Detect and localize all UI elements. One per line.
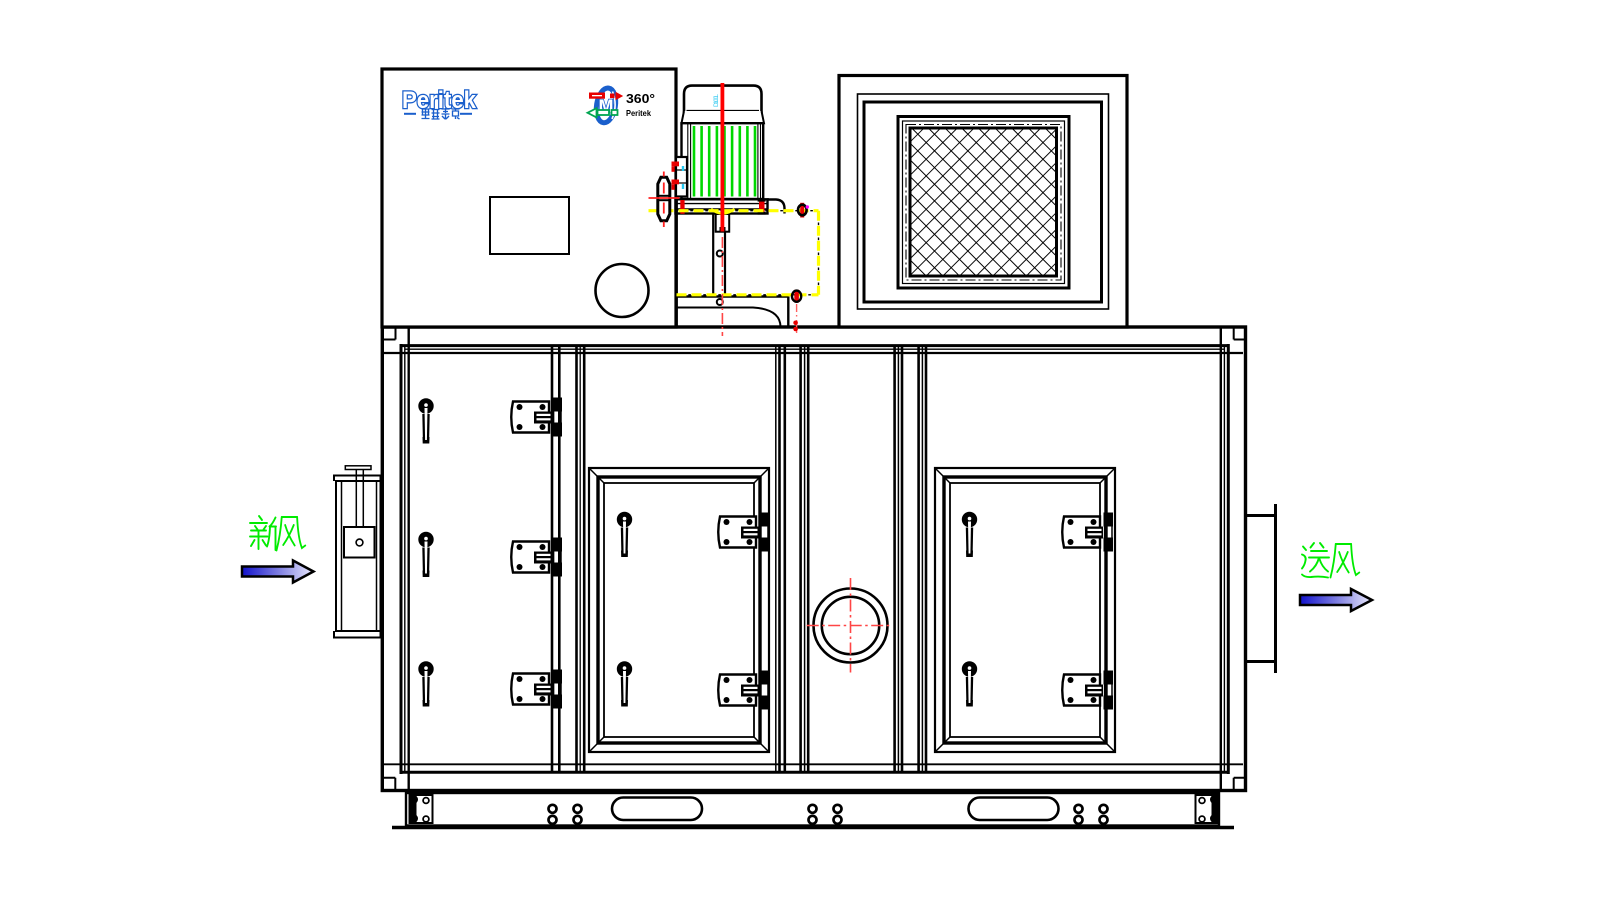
svg-text:360°: 360° — [626, 92, 655, 106]
svg-text:D100L: D100L — [713, 93, 720, 107]
svg-text:Peritek: Peritek — [626, 108, 651, 118]
